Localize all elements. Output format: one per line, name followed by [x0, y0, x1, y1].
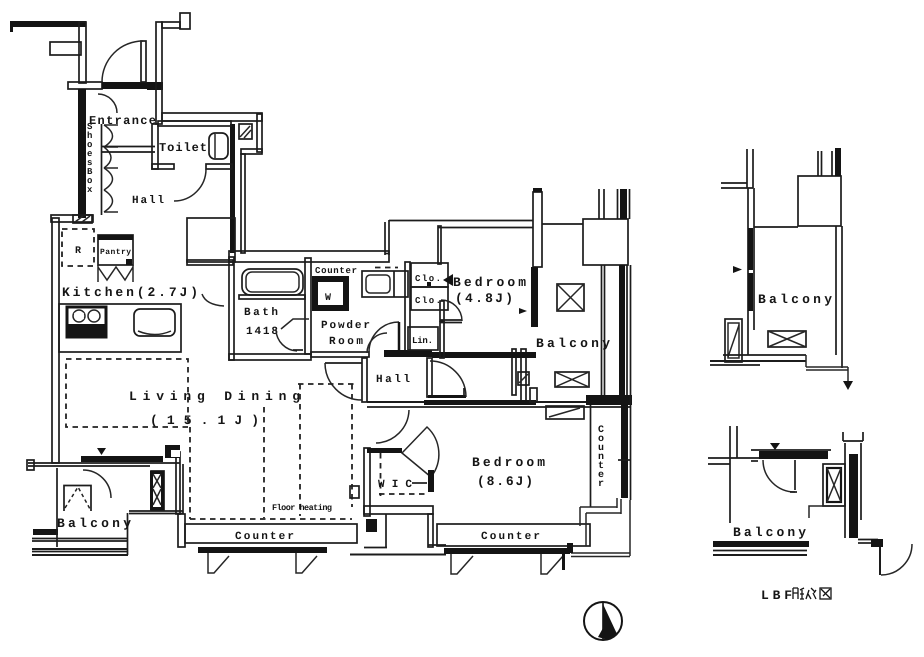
- svg-text:W: W: [325, 293, 331, 304]
- svg-text:R: R: [75, 246, 81, 257]
- svg-text:r: r: [598, 479, 604, 490]
- svg-text:1418: 1418: [246, 326, 278, 338]
- svg-text:Counter: Counter: [315, 266, 357, 276]
- svg-text:Pantry: Pantry: [100, 248, 131, 257]
- svg-text:Toilet: Toilet: [159, 141, 207, 155]
- svg-text:Clo.: Clo.: [415, 296, 441, 306]
- svg-text:WIC: WIC: [378, 479, 412, 491]
- svg-text:Floor heating: Floor heating: [272, 503, 332, 513]
- svg-text:LBF: LBF: [761, 588, 792, 603]
- svg-text:Entrance: Entrance: [89, 114, 156, 128]
- svg-text:Counter: Counter: [481, 531, 540, 543]
- svg-text:Counter: Counter: [235, 531, 294, 543]
- svg-text:Hall: Hall: [132, 195, 164, 207]
- svg-text:Lin.: Lin.: [412, 336, 433, 346]
- svg-text:x: x: [87, 185, 93, 195]
